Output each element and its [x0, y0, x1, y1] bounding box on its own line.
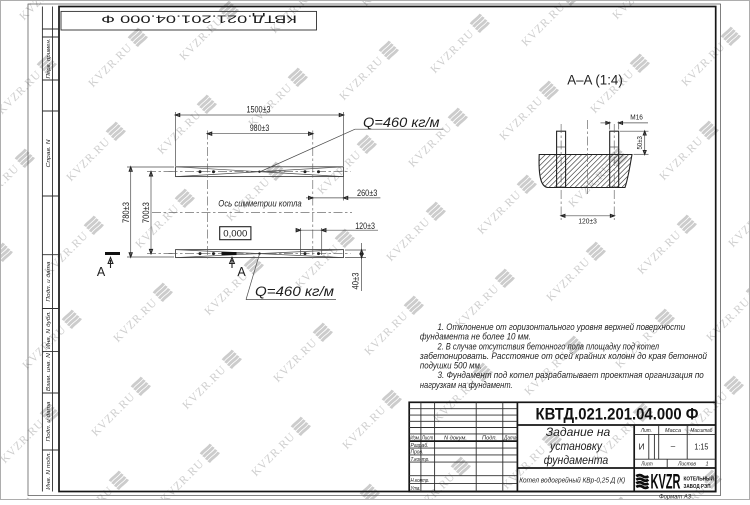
- svg-text:И: И: [638, 442, 644, 452]
- svg-text:A: A: [237, 265, 246, 279]
- svg-text:0,000: 0,000: [223, 229, 247, 240]
- svg-text:Дата: Дата: [503, 435, 517, 441]
- svg-text:Подп. и дата: Подп. и дата: [46, 262, 52, 302]
- svg-text:40±3: 40±3: [350, 272, 360, 289]
- svg-text:Перв. примен.: Перв. примен.: [46, 39, 52, 79]
- svg-text:Подп. и дата: Подп. и дата: [46, 402, 52, 442]
- svg-text:3. Фундамент под котел разраба: 3. Фундамент под котел разрабатывает про…: [438, 370, 704, 380]
- svg-text:фундамента не более 10 мм.: фундамента не более 10 мм.: [420, 332, 531, 342]
- svg-text:Пров.: Пров.: [411, 450, 424, 456]
- svg-text:–: –: [671, 442, 676, 451]
- svg-text:KVZR: KVZR: [651, 471, 681, 494]
- svg-text:980±3: 980±3: [250, 123, 270, 133]
- svg-text:Лит.: Лит.: [640, 428, 652, 434]
- svg-text:780±3: 780±3: [121, 202, 131, 223]
- svg-text:Справ. N: Справ. N: [46, 138, 52, 167]
- svg-text:Задание на: Задание на: [546, 425, 611, 439]
- svg-text:нагрузкам на фундамент.: нагрузкам на фундамент.: [420, 380, 513, 390]
- svg-text:фундамента: фундамента: [544, 453, 609, 467]
- svg-text:2. В случае отсутствия бетонно: 2. В случае отсутствия бетонного пола пл…: [437, 341, 659, 351]
- svg-text:ЗАВОД РЭП: ЗАВОД РЭП: [684, 484, 711, 490]
- svg-text:Инв. N дубл.: Инв. N дубл.: [46, 311, 52, 349]
- svg-text:A: A: [97, 265, 106, 279]
- svg-text:1:15: 1:15: [694, 441, 708, 451]
- svg-text:Т.контр.: Т.контр.: [411, 457, 430, 463]
- svg-text:КВТД.021.201.04.000 Ф: КВТД.021.201.04.000 Ф: [101, 13, 297, 25]
- svg-text:1500±3: 1500±3: [247, 104, 271, 114]
- svg-text:Подп.: Подп.: [482, 435, 497, 441]
- svg-text:Разраб.: Разраб.: [411, 443, 429, 449]
- svg-text:Взам. инв. N: Взам. инв. N: [46, 352, 52, 391]
- svg-text:установку: установку: [549, 439, 603, 453]
- svg-text:Инв. N подл.: Инв. N подл.: [46, 452, 52, 490]
- svg-text:Q=460 кг/м: Q=460 кг/м: [255, 284, 334, 299]
- svg-text:Листов: Листов: [677, 462, 696, 468]
- svg-text:Н.контр.: Н.контр.: [411, 478, 430, 484]
- svg-text:М16: М16: [630, 115, 643, 122]
- svg-text:Масштаб: Масштаб: [690, 428, 713, 434]
- svg-text:Ось симметрии котла: Ось симметрии котла: [218, 199, 301, 209]
- svg-text:1: 1: [705, 462, 708, 468]
- svg-text:120±3: 120±3: [578, 216, 597, 225]
- svg-text:Лист: Лист: [421, 435, 433, 441]
- svg-text:120±3: 120±3: [355, 221, 375, 231]
- svg-text:Формат А3: Формат А3: [659, 494, 691, 500]
- svg-text:Q=460 кг/м: Q=460 кг/м: [363, 115, 440, 130]
- svg-text:Утв.: Утв.: [410, 486, 421, 492]
- svg-text:N докум.: N докум.: [444, 435, 467, 441]
- svg-text:700±3: 700±3: [141, 202, 151, 223]
- svg-text:50±3: 50±3: [637, 136, 644, 150]
- svg-text:КОТЕЛЬНЫЙ: КОТЕЛЬНЫЙ: [684, 475, 715, 483]
- svg-text:КВТД.021.201.04.000 Ф: КВТД.021.201.04.000 Ф: [536, 405, 699, 423]
- svg-text:Изм.: Изм.: [410, 435, 420, 441]
- svg-text:260±3: 260±3: [357, 188, 377, 198]
- svg-text:Котел водогрейный КВр-0,25 Д (: Котел водогрейный КВр-0,25 Д (К): [519, 475, 625, 484]
- svg-text:Масса: Масса: [665, 428, 681, 434]
- svg-text:Лист: Лист: [640, 462, 653, 468]
- svg-text:забетонировать. Расстояние от: забетонировать. Расстояние от осей крайн…: [419, 351, 707, 361]
- svg-text:подушки 500 мм.: подушки 500 мм.: [420, 361, 482, 371]
- svg-text:A–A (1:4): A–A (1:4): [567, 73, 623, 88]
- svg-text:1. Отклонение от горизонтально: 1. Отклонение от горизонтального уровня …: [438, 322, 686, 332]
